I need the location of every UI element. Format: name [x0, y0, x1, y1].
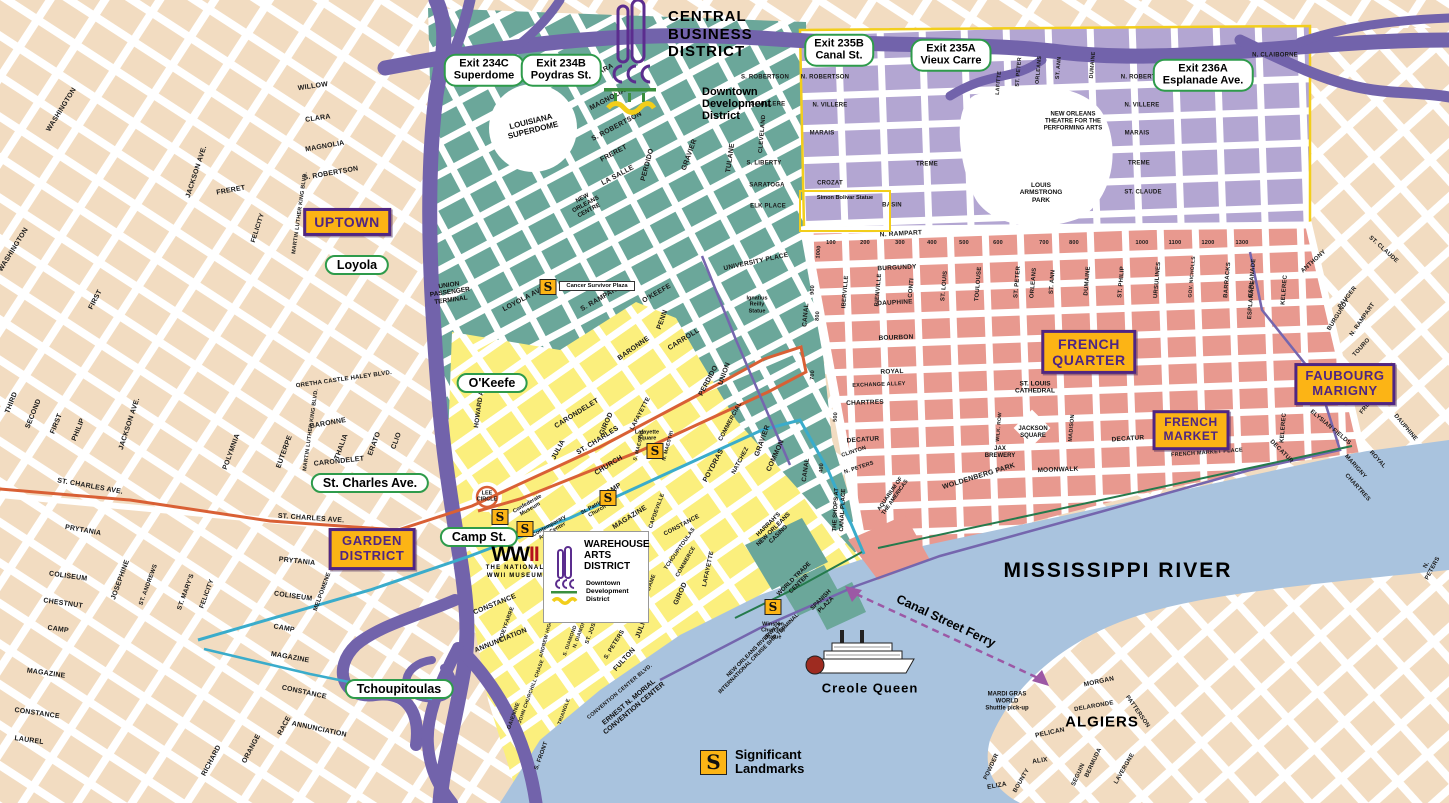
armstrong-park-shape [960, 86, 1113, 226]
creole-queen-boat [798, 628, 928, 682]
map-legend: S Significant Landmarks [700, 748, 804, 777]
ddd-logo [598, 0, 662, 120]
creole-queen-label: Creole Queen [822, 681, 919, 696]
highway-exit-pill: Exit 236A Esplanade Ave. [1153, 59, 1254, 92]
street-label: BOURBON [878, 334, 913, 342]
highway-exit-pill: Exit 234B Poydras St. [521, 54, 602, 87]
significant-landmark-icon: S [765, 599, 782, 615]
street-label: N. VILLERE [812, 103, 847, 110]
street-label: 1100 [1169, 240, 1182, 246]
district-badge: FRENCH QUARTER [1041, 330, 1136, 374]
street-name-pill: O'Keefe [457, 373, 528, 393]
place-label: JACKSON SQUARE [1018, 426, 1047, 440]
district-badge: FRENCH MARKET [1153, 410, 1230, 450]
significant-landmark-icon: S [600, 490, 617, 506]
street-label: 1000 [815, 245, 822, 259]
street-label: 400 [927, 240, 937, 246]
street-label: TREME [916, 162, 938, 169]
street-label: 1300 [1235, 240, 1248, 246]
street-name-pill: Tchoupitoulas [345, 679, 454, 699]
ddd-logo-small [548, 538, 580, 616]
mississippi-river-label: MISSISSIPPI RIVER [1004, 559, 1233, 583]
place-label: Lafayette Square [635, 430, 659, 443]
street-label: ELK PLACE [750, 204, 786, 211]
place-label: JAX BREWERY [985, 446, 1015, 460]
street-label: 1000 [1135, 240, 1148, 246]
street-label: 900 [810, 285, 817, 295]
wwii-museum-logo: WWII THE NATIONAL WWII MUSEUM [483, 544, 547, 581]
cbd-ddd-label: Downtown Development District [702, 86, 771, 122]
street-label: 700 [1039, 240, 1049, 246]
street-label: 800 [1069, 240, 1079, 246]
street-label: S. ROBERTSON [741, 75, 789, 82]
new-orleans-tourist-map: WILLOWCLARAMAGNOLIAS. ROBERTSONFRERETWAS… [0, 0, 1449, 803]
street-label: N. VILLERE [1124, 103, 1159, 110]
street-label: 500 [833, 412, 840, 422]
wwii-subtitle: THE NATIONAL WWII MUSEUM [483, 565, 547, 581]
simon-bolivar-statue-box: Simon Bolivar Statue [799, 190, 891, 232]
warehouse-arts-district-box: WAREHOUSE ARTS DISTRICT Downtown Develop… [543, 531, 649, 623]
street-label: 1200 [1201, 240, 1214, 246]
place-label: ST. LOUIS CATHEDRAL [1015, 381, 1055, 396]
street-label: SARATOGA [749, 183, 784, 190]
place-label: LEE CIRCLE [477, 491, 497, 504]
place-label: LOUIS ARMSTRONG PARK [1020, 182, 1063, 204]
street-label: MARAIS [810, 131, 835, 138]
place-label: Ignatius Reilly Statue [746, 296, 767, 315]
street-label: 400 [819, 463, 826, 473]
significant-landmark-icon: S [492, 509, 509, 525]
warehouse-title: WAREHOUSE ARTS DISTRICT [584, 540, 650, 572]
place-label: Winston Churchill Statue [761, 622, 785, 641]
street-label: CROZAT [817, 181, 843, 188]
cbd-title: CENTRAL BUSINESS DISTRICT [668, 8, 753, 61]
street-label: N. CLAIBORNE [1252, 53, 1298, 60]
district-badge: UPTOWN [303, 208, 391, 236]
street-label: 100 [826, 240, 836, 246]
place-label: MARDI GRAS WORLD Shuttle pick-up [985, 692, 1028, 713]
street-label: 800 [815, 311, 822, 321]
street-label: MARAIS [1125, 131, 1150, 138]
place-label: NEW ORLEANS THEATRE FOR THE PERFORMING A… [1044, 112, 1102, 133]
street-label: 500 [959, 240, 969, 246]
district-badge: FAUBOURG MARIGNY [1294, 363, 1395, 405]
legend-landmark-icon: S [700, 750, 727, 775]
street-label: MOONWALK [1037, 466, 1078, 475]
algiers-label: ALGIERS [1065, 714, 1139, 731]
significant-landmark-icon: S [517, 521, 534, 537]
cancer-survivor-plaza-box: Cancer Survivor Plaza [559, 281, 635, 291]
street-label: TREME [1128, 161, 1150, 168]
street-label: 300 [895, 240, 905, 246]
street-label: S. LIBERTY [746, 161, 781, 168]
district-badge: GARDEN DISTRICT [329, 528, 416, 570]
street-label: 700 [810, 370, 817, 380]
street-name-pill: Loyola [325, 255, 389, 275]
place-label: THE SHOPS AT CANAL PLACE [832, 488, 848, 532]
street-label: CHARTRES [846, 399, 884, 408]
highway-exit-pill: Exit 235B Canal St. [804, 34, 874, 67]
street-label: N. ROBERTSON [801, 75, 849, 82]
street-label: 200 [860, 240, 870, 246]
significant-landmark-icon: S [540, 279, 557, 295]
street-label: ROYAL [880, 368, 903, 376]
warehouse-ddd-label: Downtown Development District [586, 580, 629, 603]
significant-landmark-icon: S [647, 443, 664, 459]
street-label: 600 [993, 240, 1003, 246]
street-label: ST. CLAUDE [1124, 190, 1161, 197]
highway-exit-pill: Exit 234C Superdome [444, 54, 525, 87]
wwii-ww: WW [491, 543, 529, 566]
wwii-ii: II [529, 543, 539, 566]
street-name-pill: St. Charles Ave. [311, 473, 429, 493]
legend-label: Significant Landmarks [735, 748, 804, 777]
highway-exit-pill: Exit 235A Vieux Carre [911, 39, 992, 72]
